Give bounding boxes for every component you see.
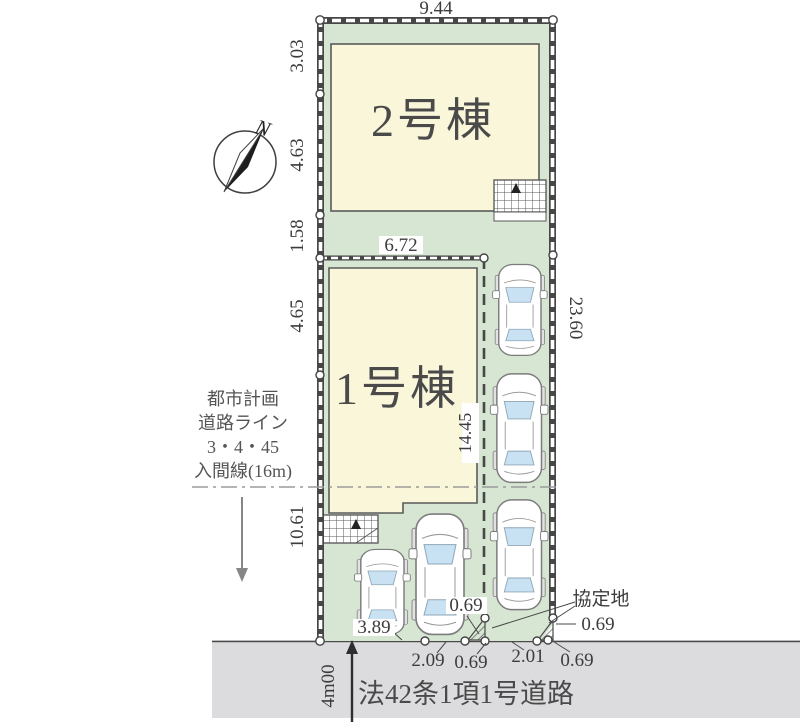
planning-road-note: 都市計画 道路ライン 3・4・45 入間線(16m) xyxy=(194,389,292,582)
dim-bottom-left: 3.89 xyxy=(357,617,390,638)
dim-left-4: 4.65 xyxy=(287,299,308,332)
dim-setback-right: 0.69 xyxy=(581,614,614,635)
dim-bottom-1: 2.09 xyxy=(411,650,444,671)
road-width-label: 4m00 xyxy=(318,664,339,707)
stairs-building-1 xyxy=(320,515,378,543)
dim-right-total: 23.60 xyxy=(565,297,586,340)
note-line-3: 3・4・45 xyxy=(207,437,279,457)
dim-lot1-depth: 14.45 xyxy=(455,413,475,454)
dim-bottom-4: 0.69 xyxy=(560,650,593,671)
note-line-2: 道路ライン xyxy=(198,413,288,433)
note-line-4: 入間線(16m) xyxy=(194,461,292,482)
dim-setback-inner: 0.69 xyxy=(449,595,482,616)
note-line-1: 都市計画 xyxy=(207,389,279,409)
compass-north-label: N xyxy=(252,114,275,142)
building-2-label: 2号棟 xyxy=(371,95,495,146)
dim-top-width: 9.44 xyxy=(419,0,453,19)
car-topview xyxy=(490,374,548,483)
dim-bottom-3: 2.01 xyxy=(511,646,544,667)
car-topview xyxy=(493,265,548,356)
dim-left-5: 10.61 xyxy=(287,506,308,549)
building-1-label: 1号棟 xyxy=(335,363,459,414)
agreement-land-label: 協定地 xyxy=(572,588,629,610)
stairs-building-2 xyxy=(494,180,546,221)
down-arrow-icon xyxy=(236,568,248,582)
north-compass: N xyxy=(214,114,276,193)
dim-left-1: 3.03 xyxy=(287,39,308,72)
dim-lot1-width: 6.72 xyxy=(384,235,417,256)
dim-bottom-2: 0.69 xyxy=(454,652,487,673)
site-plan-canvas: 9.44 3.03 4.63 1.58 4.65 10.61 6.72 23.6… xyxy=(0,0,800,724)
road-name-label: 法42条1項1号道路 xyxy=(358,679,574,709)
dim-left-3: 1.58 xyxy=(287,219,308,252)
car-topview xyxy=(490,500,548,610)
dim-left-2: 4.63 xyxy=(287,138,308,171)
car-topview xyxy=(409,514,471,634)
site-plan-svg: 9.44 3.03 4.63 1.58 4.65 10.61 6.72 23.6… xyxy=(0,0,800,724)
